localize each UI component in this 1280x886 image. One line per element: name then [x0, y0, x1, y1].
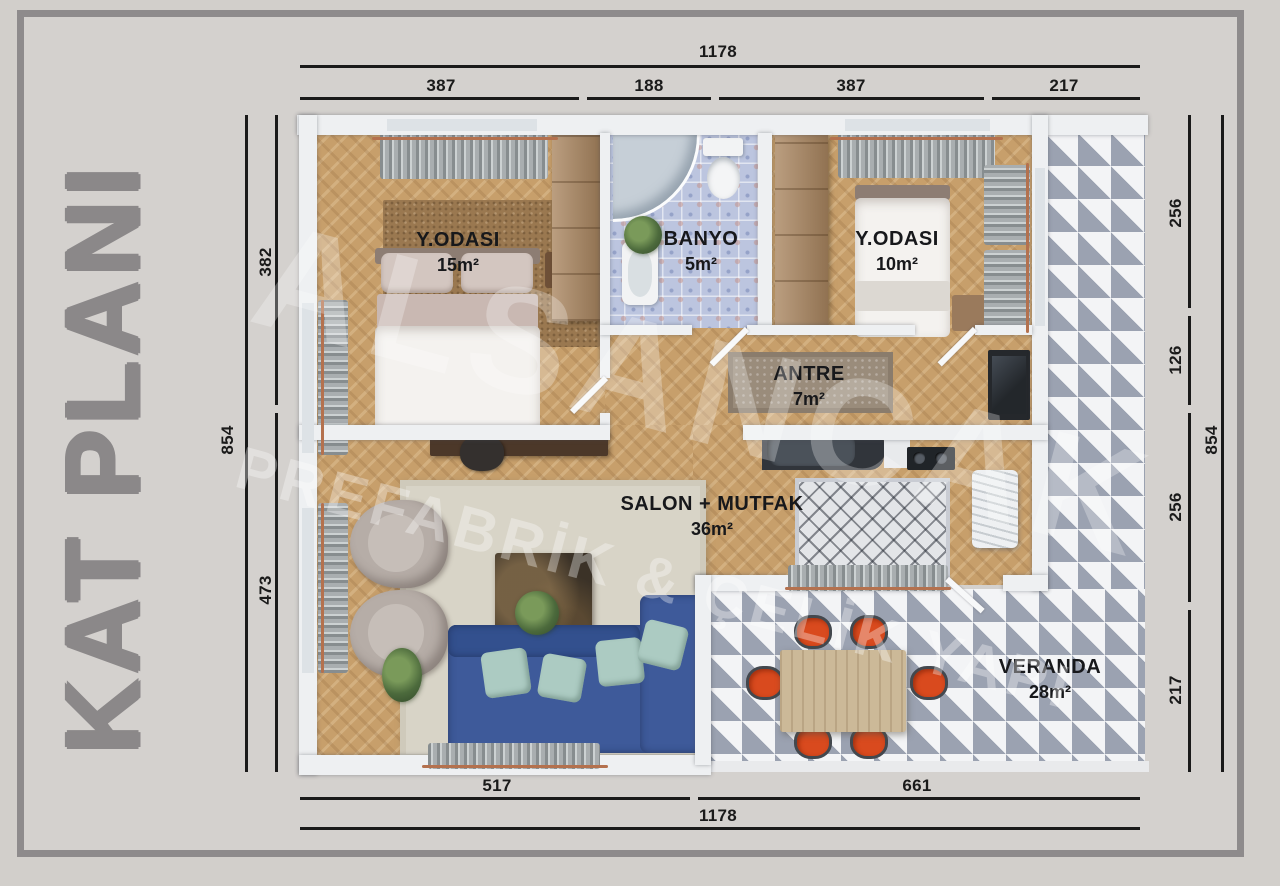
dim-right-seg-3: 256	[1166, 492, 1186, 521]
tv-unit	[988, 350, 1030, 420]
room-name: ANTRE	[773, 361, 844, 387]
wall-living-veranda	[695, 575, 711, 765]
room-area: 28m²	[999, 680, 1101, 704]
bed-blanket	[377, 294, 538, 330]
window-bedroom-large-top	[387, 119, 537, 131]
dim-left-seg-2: 473	[256, 575, 276, 604]
window-living-left	[302, 508, 314, 673]
sofa-pillow	[480, 647, 532, 699]
wall-bathroom-right	[758, 133, 772, 335]
dim-right-seg-line-4	[1188, 610, 1191, 772]
dim-right-seg-line-1	[1188, 115, 1191, 308]
dim-bottom-total-line	[300, 827, 1140, 830]
dim-top-seg-line-1	[300, 97, 579, 100]
dim-left-seg-1: 382	[256, 247, 276, 276]
dim-right-seg-2: 126	[1166, 345, 1186, 374]
room-name: Y.ODASI	[855, 226, 939, 252]
floor-plan: Y.ODASI 15m² BANYO 5m² Y.ODASI 10m² ANTR…	[297, 113, 1152, 775]
wall-toprow-bottom-b	[747, 325, 915, 335]
room-area: 15m²	[416, 253, 500, 277]
room-area: 7m²	[773, 387, 844, 411]
room-label-living-kitchen: SALON + MUTFAK 36m²	[620, 491, 803, 541]
curtain-rod	[372, 137, 558, 140]
wall-bedroom-large-bottom	[299, 425, 610, 440]
room-label-bedroom-large: Y.ODASI 15m²	[416, 227, 500, 277]
plant-bathroom	[624, 216, 662, 254]
dim-right-seg-1: 256	[1166, 198, 1186, 227]
curtain-rod	[422, 765, 608, 768]
dining-chair	[746, 666, 784, 700]
curtain-rod	[321, 300, 324, 455]
dim-top-seg-2: 188	[634, 76, 663, 96]
dim-left-total-line	[245, 115, 248, 772]
dining-table	[780, 650, 906, 732]
plant-coffee-table	[515, 591, 559, 635]
fridge	[972, 470, 1018, 548]
dining-chair	[910, 666, 948, 700]
rug-kitchen	[795, 478, 950, 578]
curtain-rod	[321, 503, 324, 673]
curtain-bedroom-small-right-b	[984, 250, 1030, 330]
dim-right-total: 854	[1202, 425, 1222, 454]
room-area: 5m²	[664, 252, 739, 276]
curtain-bedroom-small-right-a	[984, 165, 1030, 245]
room-name: BANYO	[664, 226, 739, 252]
room-area: 36m²	[620, 517, 803, 541]
desk-chair	[460, 435, 504, 471]
toilet-tank	[703, 138, 743, 156]
curtain-rod	[785, 587, 951, 590]
wall-toprow-bottom-c	[975, 325, 1032, 335]
dim-top-seg-line-3	[719, 97, 984, 100]
armchair	[350, 500, 448, 588]
dim-top-seg-1: 387	[426, 76, 455, 96]
dim-right-seg-line-3	[1188, 413, 1191, 602]
window-bedroom-small-right	[1035, 168, 1045, 326]
dim-left-seg-line-2	[275, 413, 278, 772]
dim-top-seg-3: 387	[836, 76, 865, 96]
dining-chair	[794, 615, 832, 649]
page-title: KAT PLANI	[45, 162, 164, 754]
dim-bottom-seg-line-1	[300, 797, 690, 800]
wardrobe-bedroom-large	[552, 133, 600, 321]
dim-left-seg-line-1	[275, 115, 278, 405]
dim-bottom-seg-1: 517	[482, 776, 511, 796]
dim-top-total: 1178	[699, 42, 737, 62]
room-name: VERANDA	[999, 654, 1101, 680]
sofa-pillow	[537, 653, 588, 704]
room-label-bedroom-small: Y.ODASI 10m²	[855, 226, 939, 276]
dim-top-seg-4: 217	[1049, 76, 1078, 96]
room-area: 10m²	[855, 252, 939, 276]
stove-burner	[913, 452, 925, 464]
plant-living-room	[382, 648, 422, 702]
dining-chair	[850, 615, 888, 649]
dim-top-seg-line-4	[992, 97, 1140, 100]
toilet-bowl	[707, 157, 740, 199]
room-label-bathroom: BANYO 5m²	[664, 226, 739, 276]
floor-plan-page: KAT PLANI 1178 387 188 387 217 517 661 1…	[0, 0, 1280, 886]
dim-right-seg-4: 217	[1166, 675, 1186, 704]
dim-left-total: 854	[218, 425, 238, 454]
stove-burner	[935, 452, 947, 464]
dim-bottom-seg-2: 661	[902, 776, 931, 796]
curtain-rod	[830, 137, 1003, 140]
bed-duvet	[375, 326, 540, 432]
wall-bedroom-large-right-a	[600, 133, 610, 378]
dim-bottom-seg-line-2	[698, 797, 1140, 800]
dim-right-total-line	[1221, 115, 1224, 772]
dim-top-seg-line-2	[587, 97, 711, 100]
dim-right-seg-line-2	[1188, 316, 1191, 405]
veranda-bottom-edge	[709, 761, 1149, 772]
dim-bottom-total: 1178	[699, 806, 737, 826]
room-label-veranda: VERANDA 28m²	[999, 654, 1101, 704]
room-name: SALON + MUTFAK	[620, 491, 803, 517]
sofa-pillow	[595, 637, 646, 688]
room-name: Y.ODASI	[416, 227, 500, 253]
window-bedroom-large-left	[302, 303, 314, 453]
wall-kitchen-bottom-b	[1003, 575, 1048, 591]
wall-toprow-bottom-a	[600, 325, 692, 335]
dim-top-total-line	[300, 65, 1140, 68]
wall-hallway-bottom	[743, 425, 1048, 440]
curtain-rod	[1026, 163, 1029, 333]
stove	[907, 447, 955, 470]
wardrobe-bedroom-small	[775, 135, 828, 328]
window-bedroom-small-top	[845, 119, 990, 131]
room-label-hallway: ANTRE 7m²	[773, 361, 844, 411]
bed-blanket	[855, 281, 950, 311]
